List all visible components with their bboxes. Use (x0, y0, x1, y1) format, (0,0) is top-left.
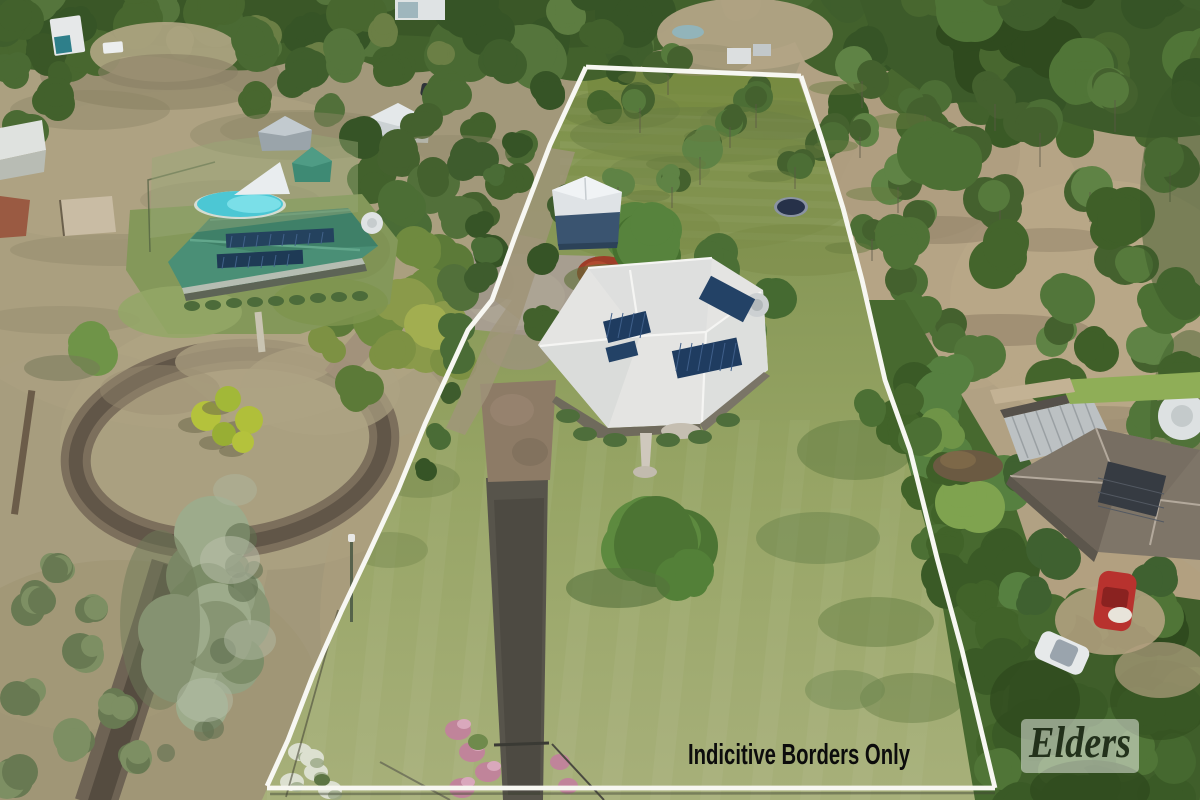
svg-text:Elders: Elders (1028, 718, 1131, 767)
svg-text:Indicitive Borders Only: Indicitive Borders Only (688, 739, 910, 771)
